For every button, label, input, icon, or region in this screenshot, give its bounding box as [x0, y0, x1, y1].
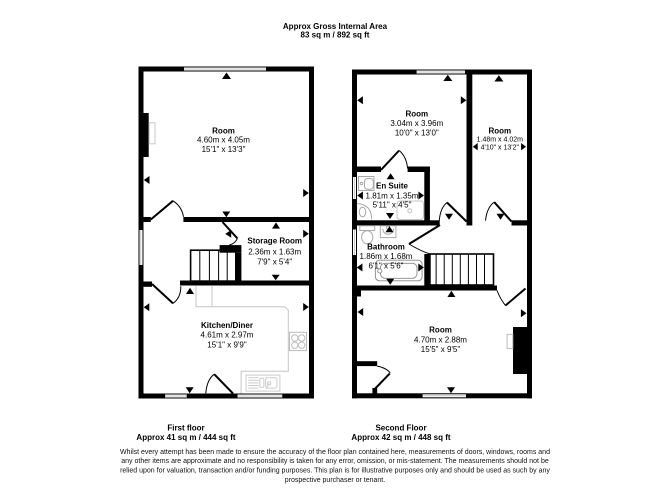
- svg-text:1.81m x 1.35m: 1.81m x 1.35m: [366, 191, 419, 200]
- svg-text:10'0" x 13'0": 10'0" x 13'0": [395, 129, 439, 138]
- svg-text:15'1" x 13'3": 15'1" x 13'3": [202, 145, 246, 154]
- svg-text:4.60m x 4.05m: 4.60m x 4.05m: [197, 136, 250, 145]
- svg-text:Whilst every attempt has been: Whilst every attempt has been made to en…: [120, 449, 550, 456]
- svg-text:Room: Room: [212, 127, 235, 136]
- svg-text:prospective purchaser or tenan: prospective purchaser or tenant.: [285, 477, 385, 484]
- svg-text:First floor: First floor: [167, 424, 204, 433]
- svg-text:1.48m x 4.02m: 1.48m x 4.02m: [477, 137, 523, 144]
- svg-text:4.70m x 2.88m: 4.70m x 2.88m: [414, 336, 467, 345]
- svg-text:5'11" x 4'5": 5'11" x 4'5": [373, 201, 412, 210]
- svg-text:Room: Room: [405, 110, 428, 119]
- svg-text:Room: Room: [429, 326, 452, 335]
- svg-text:Storage Room: Storage Room: [247, 237, 302, 246]
- svg-text:83 sq m / 892 sq ft: 83 sq m / 892 sq ft: [301, 31, 370, 40]
- svg-text:15'5" x 9'5": 15'5" x 9'5": [421, 345, 461, 354]
- svg-text:4'10" x 13'2": 4'10" x 13'2": [481, 144, 520, 151]
- svg-text:Kitchen/Diner: Kitchen/Diner: [201, 321, 253, 330]
- svg-text:Second Floor: Second Floor: [375, 424, 426, 433]
- svg-text:Room: Room: [488, 127, 511, 136]
- svg-text:any other items are approximat: any other items are approximate and no r…: [121, 458, 549, 465]
- svg-text:7'9" x 5'4": 7'9" x 5'4": [257, 258, 292, 267]
- svg-text:relied upon for valuation, tra: relied upon for valuation, transaction a…: [120, 468, 550, 475]
- svg-text:3.04m x 3.96m: 3.04m x 3.96m: [390, 119, 443, 128]
- svg-text:4.61m x 2.97m: 4.61m x 2.97m: [201, 331, 254, 340]
- svg-text:En Suite: En Suite: [376, 181, 409, 190]
- svg-text:1.86m x 1.68m: 1.86m x 1.68m: [360, 252, 413, 261]
- svg-text:6'1" x 5'6": 6'1" x 5'6": [369, 262, 404, 271]
- svg-text:Bathroom: Bathroom: [367, 243, 405, 252]
- svg-text:15'1" x 9'9": 15'1" x 9'9": [207, 341, 247, 350]
- svg-text:Approx 42 sq m / 448 sq ft: Approx 42 sq m / 448 sq ft: [351, 433, 450, 442]
- svg-text:Approx 41 sq m / 444 sq ft: Approx 41 sq m / 444 sq ft: [136, 433, 235, 442]
- svg-text:2.36m x 1.63m: 2.36m x 1.63m: [248, 248, 301, 257]
